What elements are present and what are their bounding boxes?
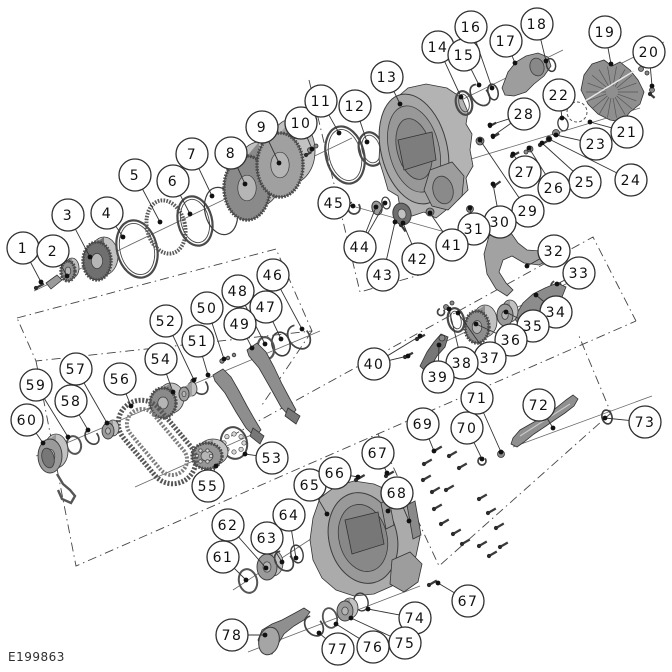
case-bolt-part [422, 460, 432, 467]
callout-number: 23 [586, 137, 607, 153]
callout-balloon-24: 24 [615, 164, 647, 196]
leader-dot [490, 86, 495, 91]
callout-number: 44 [350, 240, 371, 256]
leader-dot [121, 235, 126, 240]
nut-26b-part [524, 150, 528, 154]
callout-balloon-27: 27 [509, 156, 541, 188]
leader-dot [294, 556, 299, 561]
leader-dot [356, 475, 361, 480]
callout-number: 69 [413, 417, 434, 433]
callout-number: 16 [461, 20, 482, 36]
callout-balloon-12: 12 [339, 90, 371, 122]
leader-dot [603, 416, 608, 421]
callout-balloon-45: 45 [318, 187, 350, 219]
leader-dot [366, 607, 371, 612]
callout-balloon-17: 17 [490, 25, 522, 57]
callout-number: 36 [501, 333, 522, 349]
callout-number: 66 [325, 466, 346, 482]
washer-16-part [486, 83, 500, 101]
leader-dot [401, 221, 406, 226]
leader-line [199, 168, 212, 196]
callout-number: 11 [311, 94, 332, 110]
bearing-75-part [337, 598, 358, 621]
callout-number: 18 [527, 17, 548, 33]
leader-dot [192, 378, 197, 383]
callout-number: 15 [454, 48, 475, 64]
leader-dot [385, 471, 390, 476]
leader-dot [349, 616, 354, 621]
leader-dot [488, 123, 493, 128]
callout-number: 28 [514, 107, 535, 123]
callout-number: 37 [480, 351, 501, 367]
callout-number: 38 [452, 356, 473, 372]
finned-cover-part [581, 60, 644, 122]
callout-balloon-71: 71 [461, 382, 493, 414]
case-bolt-part [432, 505, 442, 512]
parts-diagram-page: 1234567891011121314151617181920212223242… [0, 0, 672, 672]
callout-balloon-5: 5 [119, 159, 151, 191]
leader-dot [560, 116, 565, 121]
case-bolt-part [477, 495, 487, 502]
leader-dot [210, 194, 215, 199]
callout-balloon-3: 3 [52, 199, 84, 231]
leader-dot [337, 131, 342, 136]
callout-balloon-32: 32 [538, 235, 570, 267]
leader-dot [527, 146, 532, 151]
leader-dot [279, 337, 284, 342]
case-bolt-part [439, 520, 449, 527]
leader-dot [436, 581, 441, 586]
callout-number: 20 [639, 45, 660, 61]
leader-line [605, 418, 629, 420]
callout-number: 7 [187, 147, 197, 163]
callout-balloon-23: 23 [580, 128, 612, 160]
callout-number: 17 [496, 34, 517, 50]
callout-number: 43 [373, 268, 394, 284]
leader-dot [300, 327, 305, 332]
callout-number: 73 [635, 415, 656, 431]
exploded-parts-diagram: 1234567891011121314151617181920212223242… [0, 0, 672, 672]
leader-line [143, 189, 160, 222]
ring-64-part [289, 544, 305, 564]
leader-dot [317, 631, 322, 636]
callout-number: 54 [151, 352, 172, 368]
callout-number: 58 [61, 394, 82, 410]
callout-number: 21 [617, 125, 638, 141]
callout-balloon-11: 11 [305, 85, 337, 117]
callout-number: 29 [518, 204, 539, 220]
leader-line [387, 222, 395, 259]
leader-dot [65, 274, 70, 279]
callout-number: 55 [198, 479, 219, 495]
callout-balloon-6: 6 [157, 165, 189, 197]
sprocket-shaft-54-part [179, 382, 197, 401]
callout-number: 52 [156, 314, 177, 330]
leader-dot [41, 441, 46, 446]
leader-dot [534, 293, 539, 298]
leader-dot [263, 342, 268, 347]
case-bolt-part [447, 452, 457, 459]
callout-balloon-19: 19 [589, 16, 621, 48]
callout-number: 77 [328, 642, 349, 658]
case-bolt-part [430, 488, 440, 495]
leader-dot [158, 220, 163, 225]
callout-balloon-46: 46 [257, 259, 289, 291]
callout-number: 65 [300, 478, 321, 494]
leader-line [474, 442, 482, 459]
callout-balloon-33: 33 [563, 257, 595, 289]
callout-balloon-54: 54 [145, 343, 177, 375]
leader-dot [609, 62, 614, 67]
drive-sprocket-54-part [150, 383, 184, 418]
callout-number: 70 [457, 421, 478, 437]
callout-number: 30 [490, 215, 511, 231]
leader-dot [171, 390, 176, 395]
leader-dot [398, 102, 403, 107]
callout-number: 34 [546, 305, 567, 321]
callout-number: 3 [63, 208, 73, 224]
leader-dot [547, 137, 552, 142]
callout-balloon-26: 26 [538, 172, 570, 204]
callout-balloon-66: 66 [319, 457, 351, 489]
leader-dot [432, 449, 437, 454]
callout-number: 64 [279, 508, 300, 524]
callout-number: 78 [222, 628, 243, 644]
callout-number: 9 [257, 120, 267, 136]
leader-dot [504, 310, 509, 315]
callout-balloon-55: 55 [192, 470, 224, 502]
leader-line [438, 583, 454, 593]
callout-balloon-22: 22 [543, 79, 575, 111]
callout-balloon-49: 49 [224, 308, 256, 340]
case-bolt-part [457, 464, 467, 471]
bolt-67b-part [427, 581, 437, 588]
leader-dot [551, 426, 556, 431]
leader-dot [406, 354, 411, 359]
pin-50b-part [226, 356, 230, 360]
callout-number: 1 [18, 241, 28, 257]
leader-dot [105, 421, 110, 426]
lever-pivot-part [439, 335, 445, 341]
callout-number: 60 [17, 413, 38, 429]
bearing-62-part [257, 550, 283, 580]
callout-number: 61 [213, 550, 234, 566]
leader-dot [428, 211, 433, 216]
leader-dot [365, 140, 370, 145]
leader-dot [555, 282, 560, 287]
callout-number: 40 [364, 357, 385, 373]
callout-balloon-68: 68 [381, 477, 413, 509]
leader-dot [418, 334, 423, 339]
callout-balloon-58: 58 [55, 385, 87, 417]
callout-number: 27 [515, 165, 536, 181]
leader-line [650, 68, 652, 86]
leader-dot [243, 452, 248, 457]
leader-dot [480, 457, 485, 462]
callout-number: 32 [544, 244, 565, 260]
callout-number: 63 [257, 531, 278, 547]
callout-number: 45 [324, 196, 345, 212]
callout-balloon-8: 8 [215, 137, 247, 169]
callout-number: 75 [395, 636, 416, 652]
leader-line [79, 415, 88, 430]
leader-line [608, 48, 611, 64]
leader-dot [325, 512, 330, 517]
callout-balloon-2: 2 [37, 235, 69, 267]
leader-dot [206, 373, 211, 378]
callout-balloon-42: 42 [402, 243, 434, 275]
leader-dot [66, 435, 71, 440]
leader-line [493, 123, 511, 136]
leader-dot [188, 212, 193, 217]
callout-number: 19 [595, 25, 616, 41]
leader-line [471, 69, 479, 85]
leader-line [483, 413, 501, 452]
callout-number: 67 [458, 594, 479, 610]
callout-balloon-70: 70 [451, 412, 483, 444]
leader-dot [588, 120, 593, 125]
callout-balloon-16: 16 [455, 11, 487, 43]
callout-balloon-28: 28 [508, 98, 540, 130]
callout-number: 2 [48, 244, 58, 260]
callout-number: 31 [464, 222, 485, 238]
input-stub-part [46, 275, 62, 289]
callout-number: 50 [197, 301, 218, 317]
leader-dot [88, 255, 93, 260]
figure-code: E199863 [8, 650, 65, 664]
case-bolt-part [477, 542, 487, 549]
callout-balloon-7: 7 [176, 138, 208, 170]
case-bolt-part [487, 552, 497, 559]
callout-balloon-40: 40 [358, 348, 390, 380]
snap-ring-58-part [82, 427, 101, 447]
callout-balloon-69: 69 [407, 408, 439, 440]
case-bolt-part [494, 524, 504, 531]
drive-chain-part [109, 391, 205, 493]
pin-50c-part [232, 353, 236, 357]
leader-dot [374, 205, 379, 210]
callout-balloon-73: 73 [629, 406, 661, 438]
callout-balloon-60: 60 [11, 404, 43, 436]
clip-20d-part [648, 92, 655, 98]
callout-number: 6 [168, 174, 178, 190]
callout-balloon-57: 57 [60, 353, 92, 385]
callout-balloon-37: 37 [474, 342, 506, 374]
callout-balloon-53: 53 [256, 442, 288, 474]
callout-balloon-29: 29 [512, 195, 544, 227]
leader-dot [459, 95, 464, 100]
leader-dot [650, 84, 655, 89]
callout-number: 42 [408, 252, 429, 268]
callout-number: 49 [230, 317, 251, 333]
callout-number: 53 [262, 451, 283, 467]
pin-38b-part [450, 301, 454, 305]
callout-balloon-56: 56 [104, 363, 136, 395]
hook-wire-60-part [57, 474, 75, 503]
callout-balloon-62: 62 [212, 509, 244, 541]
callout-number: 12 [345, 99, 366, 115]
leader-dot [393, 220, 398, 225]
leader-line [403, 223, 412, 244]
callout-balloon-64: 64 [273, 499, 305, 531]
callout-balloon-67: 67 [452, 585, 484, 617]
leader-line [438, 345, 439, 361]
callout-balloon-9: 9 [246, 111, 278, 143]
leader-dot [39, 280, 44, 285]
leader-dot [478, 138, 483, 143]
leader-dot [351, 204, 356, 209]
clip-set-part [314, 144, 318, 148]
callout-number: 68 [387, 486, 408, 502]
callout-balloon-59: 59 [20, 369, 52, 401]
leader-dot [437, 343, 442, 348]
callout-number: 22 [549, 88, 570, 104]
leader-dot [264, 566, 269, 571]
leader-line [368, 609, 399, 615]
leader-dot [511, 152, 516, 157]
callout-balloon-61: 61 [207, 541, 239, 573]
leader-line [556, 135, 580, 140]
callout-balloon-4: 4 [91, 197, 123, 229]
callout-number: 24 [621, 173, 642, 189]
leader-dot [474, 322, 479, 327]
callout-number: 13 [377, 70, 398, 86]
callout-number: 57 [66, 362, 87, 378]
callout-balloon-72: 72 [523, 389, 555, 421]
leader-dot [310, 147, 315, 152]
leader-dot [386, 509, 391, 514]
callout-balloon-25: 25 [569, 166, 601, 198]
callout-balloon-51: 51 [182, 325, 214, 357]
leader-dot [244, 578, 249, 583]
callout-balloon-77: 77 [322, 633, 354, 665]
callout-number: 14 [428, 40, 449, 56]
shift-fork-49-part [247, 343, 296, 417]
shift-fork-51-part [213, 369, 261, 437]
callout-number: 26 [544, 181, 565, 197]
leader-line [590, 122, 612, 128]
callout-number: 5 [130, 168, 140, 184]
leader-dot [280, 560, 285, 565]
callout-number: 48 [228, 284, 249, 300]
leader-dot [513, 61, 518, 66]
leader-dot [554, 133, 559, 138]
callout-number: 76 [363, 640, 384, 656]
callout-balloon-67: 67 [362, 437, 394, 469]
callout-balloon-48: 48 [222, 275, 254, 307]
callout-balloon-76: 76 [357, 631, 389, 663]
leader-line [30, 262, 41, 282]
callout-number: 33 [569, 266, 590, 282]
case-bolt-part [460, 540, 470, 547]
leader-dot [544, 59, 549, 64]
leader-line [281, 289, 302, 329]
leader-dot [243, 182, 248, 187]
callout-number: 72 [529, 398, 550, 414]
callout-number: 39 [428, 370, 449, 386]
leader-dot [491, 134, 496, 139]
leader-line [203, 356, 208, 375]
leader-dot [456, 311, 461, 316]
callout-number: 4 [102, 206, 112, 222]
leader-dot [86, 428, 91, 433]
blocker-ring-inner [176, 196, 214, 245]
leader-line [292, 531, 296, 558]
callout-balloon-18: 18 [521, 8, 553, 40]
callout-number: 51 [188, 334, 209, 350]
callout-balloon-50: 50 [191, 292, 223, 324]
callout-number: 46 [263, 268, 284, 284]
leader-line [388, 336, 420, 356]
callout-balloon-13: 13 [371, 61, 403, 93]
leader-dot [214, 464, 219, 469]
callout-balloon-41: 41 [436, 229, 468, 261]
callout-number: 25 [575, 175, 596, 191]
callout-number: 10 [291, 116, 312, 132]
callout-balloon-43: 43 [367, 259, 399, 291]
leader-line [542, 143, 573, 171]
callout-number: 8 [226, 146, 236, 162]
callout-balloon-1: 1 [7, 232, 39, 264]
leader-dot [263, 633, 268, 638]
leader-dot [407, 519, 412, 524]
case-bolt-part [486, 509, 496, 516]
leader-line [490, 119, 509, 125]
leader-dot [477, 83, 482, 88]
callout-number: 59 [26, 378, 47, 394]
leader-dot [499, 450, 504, 455]
leader-dot [129, 404, 134, 409]
callout-balloon-52: 52 [150, 305, 182, 337]
callout-balloon-78: 78 [216, 619, 248, 651]
callout-number: 62 [218, 518, 239, 534]
case-bolt-part [498, 543, 508, 550]
callout-number: 71 [467, 391, 488, 407]
clip-20b-part [645, 71, 649, 75]
leader-dot [447, 307, 452, 312]
case-bolt-part [451, 530, 461, 537]
callout-balloon-21: 21 [611, 116, 643, 148]
leader-dot [383, 201, 388, 206]
callout-number: 56 [110, 372, 131, 388]
spacer-57-part [102, 420, 119, 439]
leader-dot [540, 141, 545, 146]
callout-balloon-20: 20 [633, 36, 665, 68]
case-bolt-part [444, 486, 454, 493]
synchro-ring-part [141, 196, 191, 258]
callout-balloon-15: 15 [448, 39, 480, 71]
leader-dot [250, 346, 255, 351]
leader-dot [491, 182, 496, 187]
callout-number: 47 [256, 300, 277, 316]
part-drawings [34, 53, 655, 657]
leader-dot [525, 264, 530, 269]
callout-balloon-39: 39 [422, 361, 454, 393]
callout-balloon-75: 75 [389, 627, 421, 659]
drum-36-part [465, 305, 497, 343]
callout-number: 41 [442, 238, 463, 254]
callout-number: 74 [405, 611, 426, 627]
leader-dot [277, 161, 282, 166]
leader-dot [334, 622, 339, 627]
callout-number: 67 [368, 446, 389, 462]
leader-dot [222, 357, 227, 362]
callout-balloon-44: 44 [344, 231, 376, 263]
leader-dot [468, 206, 473, 211]
case-bolt-part [421, 476, 431, 483]
